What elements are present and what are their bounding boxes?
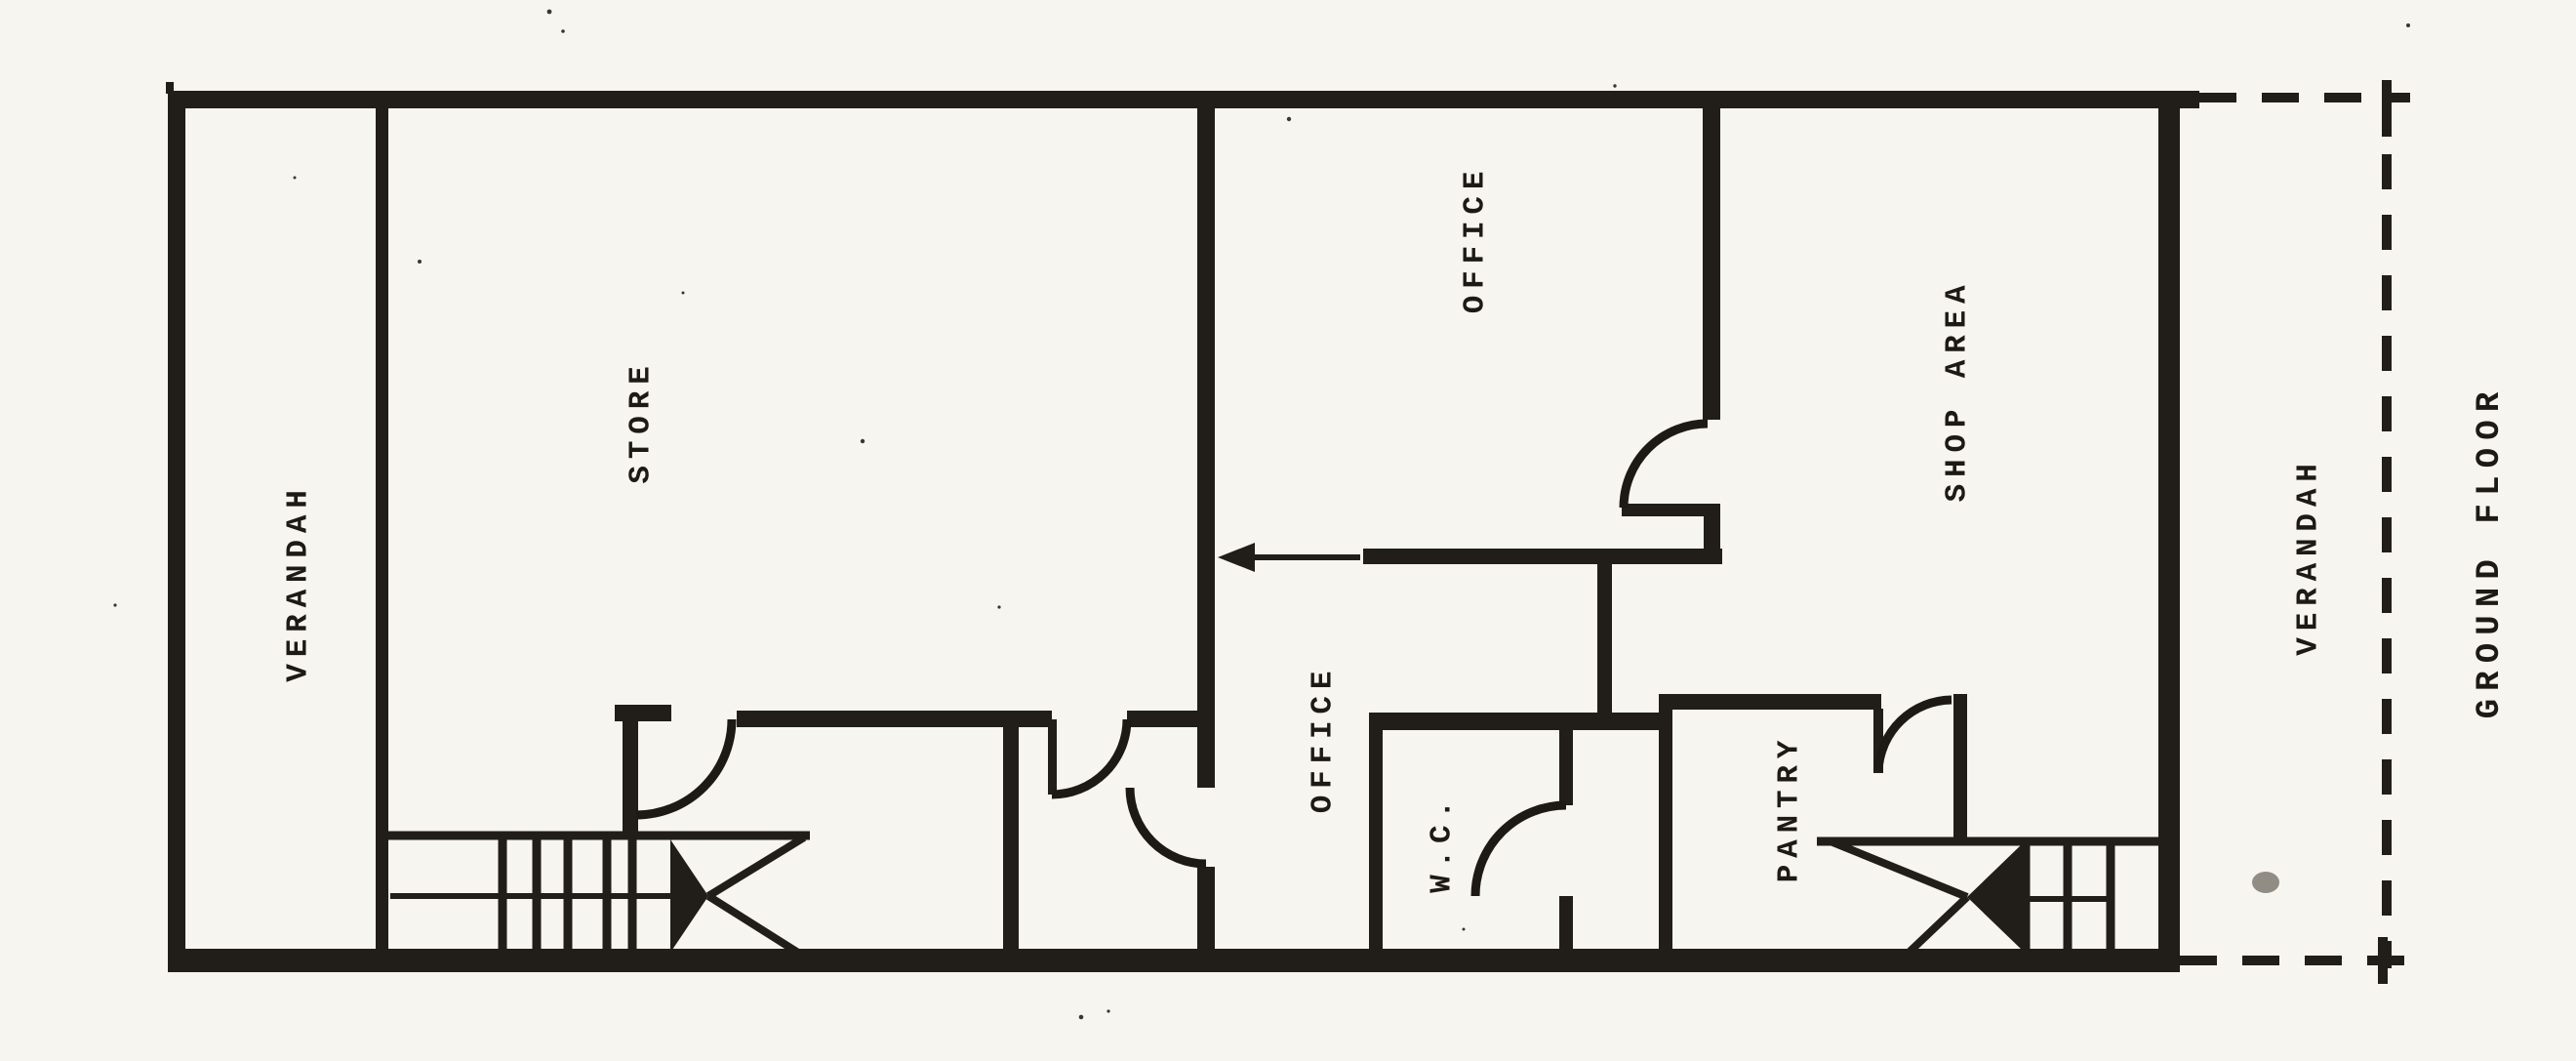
wall-top	[168, 91, 2199, 108]
stair-arrowhead	[1967, 843, 2023, 951]
wall-pantry-right	[1953, 694, 1967, 845]
stair-arrowhead	[670, 839, 708, 953]
entry-arrowhead	[1218, 543, 1255, 572]
door-arc-small-room	[1052, 719, 1127, 795]
wall-wc-right-lower	[1559, 896, 1573, 972]
room-label-shop-area: SHOP AREA	[1941, 279, 1975, 503]
floor-plan-drawing	[0, 0, 2576, 1061]
stair-arrow-tail	[708, 896, 798, 953]
stairs-right	[1817, 841, 2158, 953]
room-label-store: STORE	[624, 359, 659, 483]
stair-arrow-tail	[708, 837, 804, 896]
door-arcs	[636, 424, 1952, 896]
speck	[1107, 1009, 1109, 1012]
wall-small-room	[1003, 719, 1019, 972]
speck	[113, 603, 116, 606]
entry-arrow	[1218, 543, 1360, 572]
door-arc-store-landing	[636, 719, 732, 815]
speck	[682, 292, 685, 295]
wall-office-upper-bottom	[1363, 549, 1722, 564]
room-label-wc: W.C.	[1426, 794, 1460, 893]
floor-plan-scan: VERANDAH STORE OFFICE SHOP AREA OFFICE W…	[0, 0, 2576, 1061]
speck	[547, 10, 552, 15]
stairs-left	[384, 836, 810, 953]
stair-arrow-tail	[1909, 897, 1967, 953]
speck	[997, 605, 1000, 608]
door-arc-store-office	[1130, 788, 1206, 864]
wall-pantry-left	[1659, 694, 1672, 972]
room-label-office-lower: OFFICE	[1307, 665, 1341, 814]
stair-arrow-tail	[1831, 841, 1967, 897]
wall-store-divider-lower	[1197, 867, 1215, 972]
speck	[861, 439, 865, 443]
wall-pantry-top	[1659, 694, 1881, 710]
wall-shop-corridor	[1597, 564, 1612, 726]
speck	[418, 260, 422, 264]
wall-store-bottom-c	[1127, 711, 1215, 727]
smudge	[2252, 872, 2279, 893]
room-label-pantry: PANTRY	[1773, 734, 1807, 883]
wall-bottom	[168, 949, 2180, 972]
speck	[1079, 1015, 1084, 1020]
room-label-verandah-left: VERANDAH	[282, 483, 316, 681]
door-arc-office-upper	[1624, 424, 1708, 508]
speck	[294, 177, 297, 180]
corner-nub	[166, 82, 174, 94]
door-arc-pantry	[1878, 700, 1952, 771]
speck	[561, 29, 565, 33]
room-label-verandah-right: VERANDAH	[2292, 457, 2326, 655]
wall-corridor-top	[1369, 713, 1662, 730]
speck	[1613, 84, 1616, 87]
wall-verandah-left	[376, 91, 388, 972]
door-leaf-office-upper	[1622, 504, 1714, 516]
drawing-caption: GROUND FLOOR	[2472, 385, 2509, 719]
wall-wc-right-upper	[1559, 713, 1573, 805]
room-label-office-upper: OFFICE	[1459, 165, 1493, 314]
wall-stair-stub	[623, 705, 638, 837]
speck	[1287, 117, 1291, 121]
wall-store-divider-upper	[1197, 91, 1215, 788]
door-arc-wc	[1475, 805, 1566, 896]
speck	[2406, 23, 2410, 27]
wall-shop-divider-upper	[1703, 91, 1720, 420]
wall-left-outer	[168, 91, 185, 972]
wall-wc-left	[1369, 713, 1383, 972]
door-leaf-small-room	[1048, 719, 1057, 795]
wall-right-outer	[2158, 91, 2180, 972]
speck	[1463, 928, 1466, 931]
